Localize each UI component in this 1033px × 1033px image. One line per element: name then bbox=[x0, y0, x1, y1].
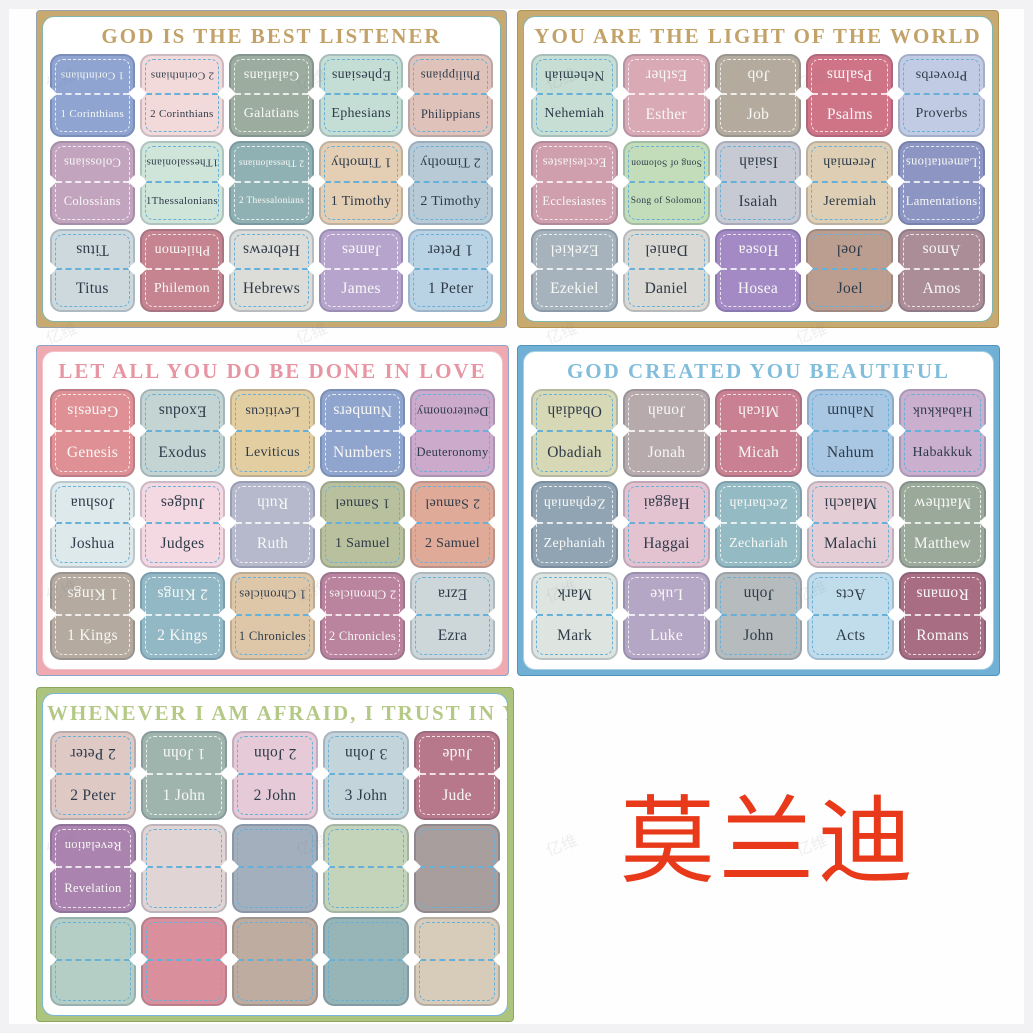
tab-1-timothy: 1 Timothy1 Timothy bbox=[319, 141, 404, 224]
tab-label-top: Habakkuk bbox=[903, 391, 982, 430]
tab-titus: TitusTitus bbox=[50, 229, 135, 312]
tab-ezra: EzraEzra bbox=[410, 572, 495, 660]
tab-label-bottom: Matthew bbox=[903, 522, 982, 566]
tab-label-top: 2 Timothy bbox=[412, 143, 489, 180]
tab-blank bbox=[232, 824, 318, 913]
tab-exodus: ExodusExodus bbox=[140, 389, 225, 477]
tab-label-bottom: Ezra bbox=[414, 614, 491, 658]
tab-label-bottom: 1 Peter bbox=[412, 268, 489, 310]
tab-label-top: Obadiah bbox=[535, 391, 614, 430]
tab-obadiah: ObadiahObadiah bbox=[531, 389, 618, 477]
tab-label-bottom: Numbers bbox=[324, 430, 401, 474]
tab-label-top: Jude bbox=[418, 733, 496, 773]
tab-label-top: Genesis bbox=[54, 391, 131, 430]
tab-romans: RomansRomans bbox=[899, 572, 986, 660]
tab-blank bbox=[414, 824, 500, 913]
tab-label-top: Mark bbox=[535, 574, 614, 613]
tab-label-bottom: 2 Kings bbox=[144, 614, 221, 658]
tabs-grid: NehemiahNehemiahEstherEstherJobJobPsalms… bbox=[524, 50, 992, 321]
panel-god-created-you-beautiful: GOD CREATED YOU BEAUTIFULObadiahObadiahJ… bbox=[517, 345, 1000, 676]
tab-label-bottom: John bbox=[719, 614, 798, 658]
tab-label-top: Joshua bbox=[54, 483, 131, 522]
tab-label-top: Song of Solomon bbox=[627, 143, 706, 180]
tab-nehemiah: NehemiahNehemiah bbox=[531, 54, 618, 137]
panel-title: GOD CREATED YOU BEAUTIFUL bbox=[524, 352, 993, 385]
tab-label-bottom: Amos bbox=[902, 268, 981, 310]
tab-label-top: Lamentations bbox=[902, 143, 981, 180]
tab-label-bottom: 2 Corinthians bbox=[144, 93, 221, 135]
tab-label-bottom bbox=[418, 959, 496, 1004]
tab-revelation: RevelationRevelation bbox=[50, 824, 136, 913]
tab-label-top: Ecclesiastes bbox=[535, 143, 614, 180]
tab-label-top: 1 Kings bbox=[54, 574, 131, 613]
tab-label-bottom: Philemon bbox=[144, 268, 221, 310]
tab-john: JohnJohn bbox=[715, 572, 802, 660]
tab-label-top: Luke bbox=[627, 574, 706, 613]
tab-label-top: Zechariah bbox=[719, 483, 798, 522]
tab-label-top: 1 John bbox=[145, 733, 223, 773]
tab-label-bottom: Colossians bbox=[54, 181, 131, 223]
tab-blank bbox=[232, 917, 318, 1006]
tab-label-bottom: 1Thessalonians bbox=[144, 181, 221, 223]
tab-label-top: Ezekiel bbox=[535, 231, 614, 268]
tab-label-top bbox=[327, 919, 405, 959]
tab-2-samuel: 2 Samuel2 Samuel bbox=[410, 481, 495, 569]
tab-label-bottom bbox=[327, 866, 405, 911]
panel-inner: WHENEVER I AM AFRAID, I TRUST IN YOU2 Pe… bbox=[42, 693, 508, 1016]
tab-label-bottom: Micah bbox=[719, 430, 798, 474]
tab-label-top: 3 John bbox=[327, 733, 405, 773]
tab-label-bottom: Philippians bbox=[412, 93, 489, 135]
tab-label-bottom bbox=[236, 866, 314, 911]
tab-label-bottom: Ruth bbox=[234, 522, 311, 566]
tab-label-top: 2 Kings bbox=[144, 574, 221, 613]
tab-label-bottom: Joel bbox=[810, 268, 889, 310]
tab-label-top: 1 Corinthians bbox=[54, 56, 131, 93]
tab-label-top: 1 Peter bbox=[412, 231, 489, 268]
tab-philemon: PhilemonPhilemon bbox=[140, 229, 225, 312]
tab-label-bottom bbox=[54, 959, 132, 1004]
tab-isaiah: IsaiahIsaiah bbox=[715, 141, 802, 224]
tab-2-chronicles: 2 Chronicles2 Chronicles bbox=[320, 572, 405, 660]
panel-title: GOD IS THE BEST LISTENER bbox=[43, 17, 500, 50]
tab-label-bottom: 1 Corinthians bbox=[54, 93, 131, 135]
tab-2-thessalonians: 2 Thessalonians2 Thessalonians bbox=[229, 141, 314, 224]
tab-label-bottom: Hosea bbox=[719, 268, 798, 310]
tab-label-top: John bbox=[719, 574, 798, 613]
tab-label-top: Leviticus bbox=[234, 391, 311, 430]
tab-label-bottom: Titus bbox=[54, 268, 131, 310]
tab-blank bbox=[141, 917, 227, 1006]
tab-label-top: Jonah bbox=[627, 391, 706, 430]
tab-lamentations: LamentationsLamentations bbox=[898, 141, 985, 224]
tab-label-top: Hosea bbox=[719, 231, 798, 268]
panel-inner: GOD CREATED YOU BEAUTIFULObadiahObadiahJ… bbox=[523, 351, 994, 670]
tab-label-bottom: Leviticus bbox=[234, 430, 311, 474]
tab-label-bottom: Obadiah bbox=[535, 430, 614, 474]
tab-2-john: 2 John2 John bbox=[232, 731, 318, 820]
tab-blank bbox=[50, 917, 136, 1006]
tab-label-top: Titus bbox=[54, 231, 131, 268]
tab-psalms: PsalmsPsalms bbox=[806, 54, 893, 137]
tab-ezekiel: EzekielEzekiel bbox=[531, 229, 618, 312]
tab-label-top bbox=[418, 919, 496, 959]
tab-label-bottom: 1 Chronicles bbox=[234, 614, 311, 658]
tab-label-top: 2 Samuel bbox=[414, 483, 491, 522]
tab-zechariah: ZechariahZechariah bbox=[715, 481, 802, 569]
tab-label-top: 1 Chronicles bbox=[234, 574, 311, 613]
panel-let-all-you-do-be-done-in-love: LET ALL YOU DO BE DONE IN LOVEGenesisGen… bbox=[36, 345, 509, 676]
tabs-grid: 2 Peter2 Peter1 John1 John2 John2 John3 … bbox=[43, 727, 507, 1015]
tab-label-top: 1 Samuel bbox=[324, 483, 401, 522]
tab-galatians: GalatiansGalatians bbox=[229, 54, 314, 137]
tab-label-top: Psalms bbox=[810, 56, 889, 93]
tab-label-bottom: Haggai bbox=[627, 522, 706, 566]
tab-label-top: Joel bbox=[810, 231, 889, 268]
tab-label-top bbox=[236, 826, 314, 866]
tab-label-top: Ezra bbox=[414, 574, 491, 613]
tab-label-bottom: Acts bbox=[811, 614, 890, 658]
tab-label-bottom: 2 Timothy bbox=[412, 181, 489, 223]
tab-label-bottom: Lamentations bbox=[902, 181, 981, 223]
tab-label-top bbox=[418, 826, 496, 866]
tab-label-top: Proverbs bbox=[902, 56, 981, 93]
brand-text-morandi: 莫兰迪 bbox=[620, 795, 917, 890]
tab-nahum: NahumNahum bbox=[807, 389, 894, 477]
tab-amos: AmosAmos bbox=[898, 229, 985, 312]
tab-1-kings: 1 Kings1 Kings bbox=[50, 572, 135, 660]
tab-label-bottom bbox=[145, 959, 223, 1004]
tab-label-top: Exodus bbox=[144, 391, 221, 430]
tab-label-bottom bbox=[327, 959, 405, 1004]
tab-label-top: Acts bbox=[811, 574, 890, 613]
tab-ephesians: EphesiansEphesians bbox=[319, 54, 404, 137]
tab-label-bottom: Judges bbox=[144, 522, 221, 566]
panel-inner: YOU ARE THE LIGHT OF THE WORLDNehemiahNe… bbox=[523, 16, 993, 322]
tab-label-top: Colossians bbox=[54, 143, 131, 180]
tab-1-peter: 1 Peter1 Peter bbox=[408, 229, 493, 312]
tab-habakkuk: HabakkukHabakkuk bbox=[899, 389, 986, 477]
tab-esther: EstherEsther bbox=[623, 54, 710, 137]
tab-label-top: Esther bbox=[627, 56, 706, 93]
tab-jonah: JonahJonah bbox=[623, 389, 710, 477]
tab-label-bottom: 2 Samuel bbox=[414, 522, 491, 566]
tab-blank bbox=[414, 917, 500, 1006]
tab-label-top bbox=[145, 826, 223, 866]
tab-label-bottom: Deuteronomy bbox=[414, 430, 491, 474]
tab-judges: JudgesJudges bbox=[140, 481, 225, 569]
tab-label-bottom: Zephaniah bbox=[535, 522, 614, 566]
tab-label-top: Jeremiah bbox=[810, 143, 889, 180]
tab-jude: JudeJude bbox=[414, 731, 500, 820]
tab-mark: MarkMark bbox=[531, 572, 618, 660]
tab-acts: ActsActs bbox=[807, 572, 894, 660]
tab-haggai: HaggaiHaggai bbox=[623, 481, 710, 569]
tab-label-top: Ruth bbox=[234, 483, 311, 522]
tab-label-top: Hebrews bbox=[233, 231, 310, 268]
tab-label-bottom: Nahum bbox=[811, 430, 890, 474]
tab-label-bottom: Ezekiel bbox=[535, 268, 614, 310]
tab-label-top: Numbers bbox=[324, 391, 401, 430]
tab-zephaniah: ZephaniahZephaniah bbox=[531, 481, 618, 569]
tab-label-top: Galatians bbox=[233, 56, 310, 93]
tab-colossians: ColossiansColossians bbox=[50, 141, 135, 224]
tab-label-bottom: Ephesians bbox=[323, 93, 400, 135]
tab-label-bottom: Genesis bbox=[54, 430, 131, 474]
tab-blank bbox=[323, 824, 409, 913]
tab-label-bottom: Jeremiah bbox=[810, 181, 889, 223]
tab-label-bottom: 2 Thessalonians bbox=[233, 181, 310, 223]
tab-label-top: Philippians bbox=[412, 56, 489, 93]
panel-title: YOU ARE THE LIGHT OF THE WORLD bbox=[524, 17, 992, 50]
panel-you-are-the-light-of-the-world: YOU ARE THE LIGHT OF THE WORLDNehemiahNe… bbox=[517, 10, 999, 328]
tab-1-corinthians: 1 Corinthians1 Corinthians bbox=[50, 54, 135, 137]
tab-label-bottom: Jude bbox=[418, 773, 496, 818]
tab-malachi: MalachiMalachi bbox=[807, 481, 894, 569]
tab-label-top: Amos bbox=[902, 231, 981, 268]
tab-label-bottom: Isaiah bbox=[719, 181, 798, 223]
tab-label-top: 1Thessalonians bbox=[144, 143, 221, 180]
tab-label-top bbox=[54, 919, 132, 959]
tab-label-top: 2 Thessalonians bbox=[233, 143, 310, 180]
seller-watermark: 亿维 bbox=[542, 827, 581, 861]
sticker-sheet-product-image: GOD IS THE BEST LISTENER1 Corinthians1 C… bbox=[0, 0, 1033, 1033]
tab-label-top bbox=[236, 919, 314, 959]
tab-label-top: Nahum bbox=[811, 391, 890, 430]
tab-james: JamesJames bbox=[319, 229, 404, 312]
tab-label-top: Ephesians bbox=[323, 56, 400, 93]
tab-3-john: 3 John3 John bbox=[323, 731, 409, 820]
panel-inner: GOD IS THE BEST LISTENER1 Corinthians1 C… bbox=[42, 16, 501, 322]
tab-label-top: Matthew bbox=[903, 483, 982, 522]
tab-label-top: Zephaniah bbox=[535, 483, 614, 522]
tab-label-bottom: 1 John bbox=[145, 773, 223, 818]
tab-label-bottom: 2 Chronicles bbox=[324, 614, 401, 658]
tab-2-timothy: 2 Timothy2 Timothy bbox=[408, 141, 493, 224]
tab-label-bottom: Romans bbox=[903, 614, 982, 658]
tab-label-top bbox=[327, 826, 405, 866]
tab-label-bottom: Mark bbox=[535, 614, 614, 658]
tab-label-top: 2 Peter bbox=[54, 733, 132, 773]
tab-label-bottom: Hebrews bbox=[233, 268, 310, 310]
tab-joel: JoelJoel bbox=[806, 229, 893, 312]
tab-label-bottom: Daniel bbox=[627, 268, 706, 310]
tab-song-of-solomon: Song of SolomonSong of Solomon bbox=[623, 141, 710, 224]
tab-label-bottom: Revelation bbox=[54, 866, 132, 911]
tab-label-bottom: 1 Samuel bbox=[324, 522, 401, 566]
panel-inner: LET ALL YOU DO BE DONE IN LOVEGenesisGen… bbox=[42, 351, 503, 670]
tab-2-kings: 2 Kings2 Kings bbox=[140, 572, 225, 660]
tab-1-chronicles: 1 Chronicles1 Chronicles bbox=[230, 572, 315, 660]
panel-title: LET ALL YOU DO BE DONE IN LOVE bbox=[43, 352, 502, 385]
tab-label-bottom: James bbox=[323, 268, 400, 310]
tabs-grid: 1 Corinthians1 Corinthians2 Corinthians2… bbox=[43, 50, 500, 321]
tab-label-bottom: Malachi bbox=[811, 522, 890, 566]
tab-joshua: JoshuaJoshua bbox=[50, 481, 135, 569]
tab-label-top: 1 Timothy bbox=[323, 143, 400, 180]
tab-label-bottom: 1 Kings bbox=[54, 614, 131, 658]
tab-label-top: Isaiah bbox=[719, 143, 798, 180]
tab-label-bottom: Nehemiah bbox=[535, 93, 614, 135]
tab-label-bottom bbox=[145, 866, 223, 911]
tab-genesis: GenesisGenesis bbox=[50, 389, 135, 477]
tab-label-bottom: Joshua bbox=[54, 522, 131, 566]
tab-label-bottom bbox=[418, 866, 496, 911]
tab-label-bottom: 2 John bbox=[236, 773, 314, 818]
tab-1-samuel: 1 Samuel1 Samuel bbox=[320, 481, 405, 569]
tab-luke: LukeLuke bbox=[623, 572, 710, 660]
tab-label-top: Daniel bbox=[627, 231, 706, 268]
tab-label-bottom: Habakkuk bbox=[903, 430, 982, 474]
tab-matthew: MatthewMatthew bbox=[899, 481, 986, 569]
tab-ruth: RuthRuth bbox=[230, 481, 315, 569]
tab-label-bottom: Jonah bbox=[627, 430, 706, 474]
tab-label-top: Deuteronomy bbox=[414, 391, 491, 430]
tab-label-top: Nehemiah bbox=[535, 56, 614, 93]
tab-label-top: Job bbox=[719, 56, 798, 93]
tab-label-bottom bbox=[236, 959, 314, 1004]
tab-proverbs: ProverbsProverbs bbox=[898, 54, 985, 137]
panel-whenever-i-am-afraid-i-trust-in-you: WHENEVER I AM AFRAID, I TRUST IN YOU2 Pe… bbox=[36, 687, 514, 1022]
tab-label-top: 2 Corinthians bbox=[144, 56, 221, 93]
tab-deuteronomy: DeuteronomyDeuteronomy bbox=[410, 389, 495, 477]
tab-1thessalonians: 1Thessalonians1Thessalonians bbox=[140, 141, 225, 224]
tab-2-corinthians: 2 Corinthians2 Corinthians bbox=[140, 54, 225, 137]
panel-title: WHENEVER I AM AFRAID, I TRUST IN YOU bbox=[43, 694, 507, 727]
tabs-grid: GenesisGenesisExodusExodusLeviticusLevit… bbox=[43, 385, 502, 669]
tab-jeremiah: JeremiahJeremiah bbox=[806, 141, 893, 224]
tab-blank bbox=[141, 824, 227, 913]
tab-blank bbox=[323, 917, 409, 1006]
tab-label-bottom: Song of Solomon bbox=[627, 181, 706, 223]
tab-label-top bbox=[145, 919, 223, 959]
panel-god-is-the-best-listener: GOD IS THE BEST LISTENER1 Corinthians1 C… bbox=[36, 10, 507, 328]
tab-label-bottom: Job bbox=[719, 93, 798, 135]
tab-label-bottom: Luke bbox=[627, 614, 706, 658]
tab-label-bottom: Exodus bbox=[144, 430, 221, 474]
tab-hebrews: HebrewsHebrews bbox=[229, 229, 314, 312]
tab-philippians: PhilippiansPhilippians bbox=[408, 54, 493, 137]
tab-label-top: Malachi bbox=[811, 483, 890, 522]
tab-1-john: 1 John1 John bbox=[141, 731, 227, 820]
tab-ecclesiastes: EcclesiastesEcclesiastes bbox=[531, 141, 618, 224]
tab-hosea: HoseaHosea bbox=[715, 229, 802, 312]
tab-label-bottom: 1 Timothy bbox=[323, 181, 400, 223]
tab-label-top: Philemon bbox=[144, 231, 221, 268]
tab-label-bottom: 3 John bbox=[327, 773, 405, 818]
tab-label-top: James bbox=[323, 231, 400, 268]
tab-label-top: Judges bbox=[144, 483, 221, 522]
tab-label-bottom: Galatians bbox=[233, 93, 310, 135]
tab-label-bottom: Proverbs bbox=[902, 93, 981, 135]
tabs-grid: ObadiahObadiahJonahJonahMicahMicahNahumN… bbox=[524, 385, 993, 669]
tab-job: JobJob bbox=[715, 54, 802, 137]
tab-label-bottom: Esther bbox=[627, 93, 706, 135]
tab-label-bottom: Psalms bbox=[810, 93, 889, 135]
tab-label-top: 2 Chronicles bbox=[324, 574, 401, 613]
tab-label-bottom: Zechariah bbox=[719, 522, 798, 566]
tab-micah: MicahMicah bbox=[715, 389, 802, 477]
tab-numbers: NumbersNumbers bbox=[320, 389, 405, 477]
tab-leviticus: LeviticusLeviticus bbox=[230, 389, 315, 477]
tab-label-top: Micah bbox=[719, 391, 798, 430]
tab-daniel: DanielDaniel bbox=[623, 229, 710, 312]
tab-label-top: 2 John bbox=[236, 733, 314, 773]
tab-label-top: Haggai bbox=[627, 483, 706, 522]
tab-label-bottom: Ecclesiastes bbox=[535, 181, 614, 223]
tab-2-peter: 2 Peter2 Peter bbox=[50, 731, 136, 820]
tab-label-top: Romans bbox=[903, 574, 982, 613]
tab-label-bottom: 2 Peter bbox=[54, 773, 132, 818]
tab-label-top: Revelation bbox=[54, 826, 132, 866]
